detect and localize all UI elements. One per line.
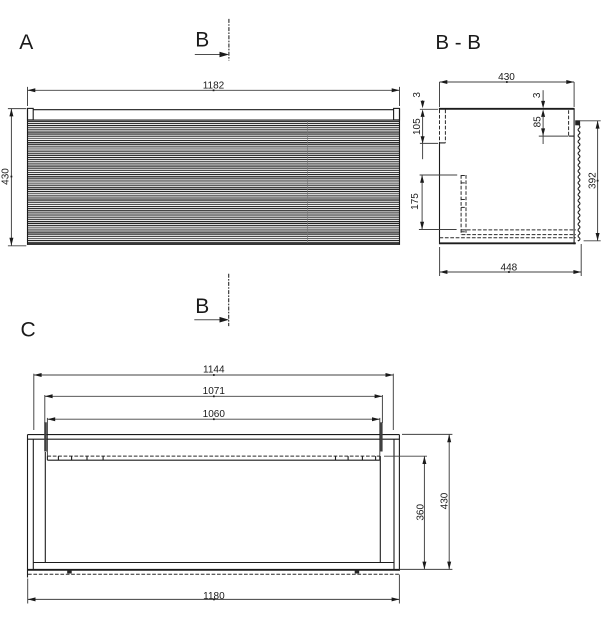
svg-text:85: 85 (533, 116, 544, 128)
svg-text:A: A (19, 31, 33, 54)
svg-text:105: 105 (412, 118, 423, 135)
svg-text:1071: 1071 (203, 386, 226, 397)
svg-text:430: 430 (1, 168, 12, 185)
svg-text:3: 3 (532, 92, 543, 98)
svg-text:430: 430 (440, 492, 451, 509)
svg-text:3: 3 (412, 92, 423, 98)
svg-text:B: B (195, 295, 209, 318)
svg-text:360: 360 (416, 504, 427, 521)
svg-text:B: B (195, 29, 209, 52)
svg-text:1144: 1144 (203, 365, 225, 376)
svg-text:1060: 1060 (203, 409, 226, 420)
svg-text:C: C (21, 318, 36, 341)
svg-text:392: 392 (587, 172, 598, 189)
svg-text:B - B: B - B (435, 31, 481, 54)
svg-text:175: 175 (410, 193, 421, 210)
